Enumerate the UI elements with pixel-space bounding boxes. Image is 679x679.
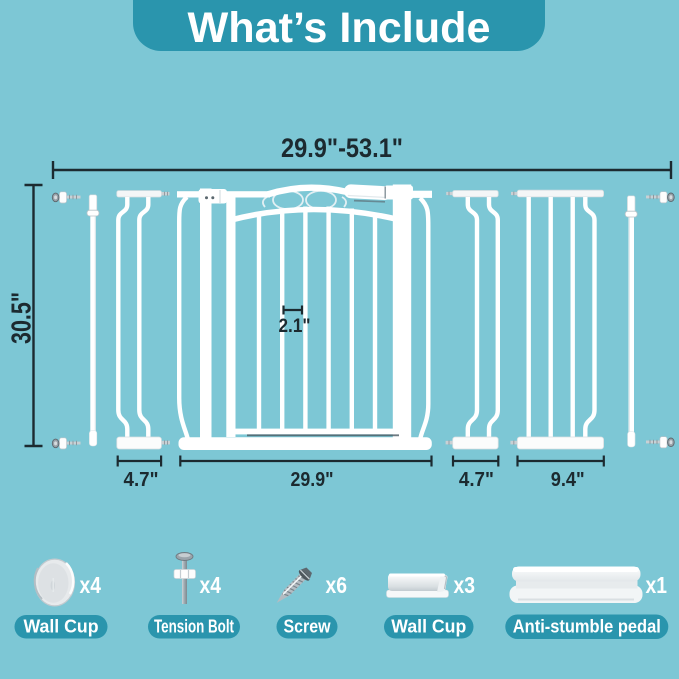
svg-text:30.5": 30.5" [6,292,37,344]
svg-text:Wall Cup: Wall Cup [391,617,466,637]
svg-text:Screw: Screw [284,617,332,637]
svg-text:4.7": 4.7" [124,469,159,491]
svg-text:Anti-stumble pedal: Anti-stumble pedal [513,617,661,637]
svg-text:x6: x6 [326,572,348,598]
svg-text:x3: x3 [454,572,476,598]
svg-text:29.9": 29.9" [291,469,334,491]
svg-text:29.9"-53.1": 29.9"-53.1" [281,133,403,163]
svg-text:9.4": 9.4" [551,469,585,491]
svg-text:x1: x1 [646,572,668,598]
svg-text:Wall Cup: Wall Cup [24,617,99,637]
svg-text:What’s Include: What’s Include [188,4,491,52]
svg-text:2.1": 2.1" [279,315,311,337]
svg-text:x4: x4 [80,572,102,598]
svg-text:4.7": 4.7" [459,469,494,491]
svg-text:x4: x4 [200,572,222,598]
svg-text:Tension Bolt: Tension Bolt [154,617,234,637]
